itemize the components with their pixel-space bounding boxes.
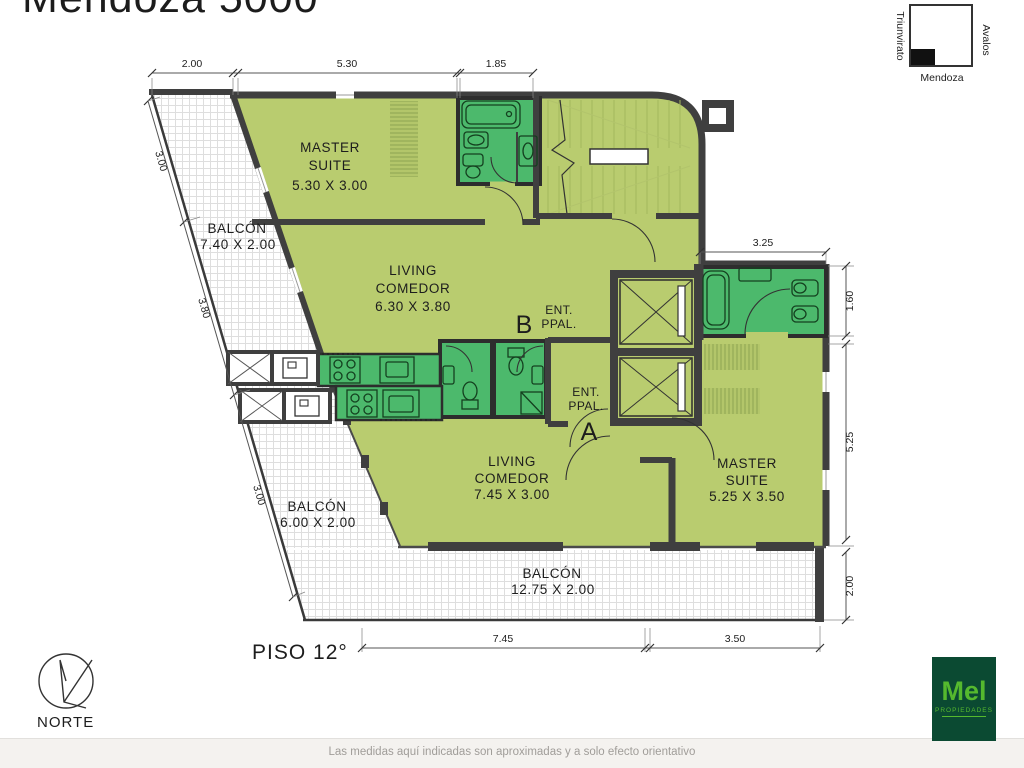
locator-map: Triunvirato Avalos Mendoza [894,5,992,84]
dim-bottom-1: 7.45 [493,633,514,645]
street-left: Triunvirato [894,11,906,60]
floor-plan-page: Mendoza 5000 [0,0,1024,768]
wardrobe-master-a-1 [704,344,760,370]
north-compass: NORTE [37,654,94,731]
svg-text:5.30 X 3.00: 5.30 X 3.00 [292,178,368,193]
dim-left-2: 3.80 [195,297,212,320]
balcony-b-label: BALCÓN [207,221,266,236]
wardrobe-master-b [390,101,418,177]
floor-plan-drawing: MASTER SUITE 5.30 X 3.00 LIVING COMEDOR … [0,0,1024,768]
svg-text:5.25 X 3.50: 5.25 X 3.50 [709,489,785,504]
svg-text:PPAL.: PPAL. [568,399,603,413]
svg-text:COMEDOR: COMEDOR [376,281,451,296]
living-a-label: LIVING [488,454,536,469]
logo-name: Mel [933,678,995,705]
street-bottom: Mendoza [920,72,963,84]
svg-text:ENT.: ENT. [545,303,573,317]
svg-text:6.00 X 2.00: 6.00 X 2.00 [280,515,356,530]
svg-text:ENT.: ENT. [572,385,600,399]
master-b-label: MASTER [300,140,360,155]
dim-left-1: 3.00 [152,150,169,173]
north-arrow-icon [60,660,92,708]
svg-text:12.75 X 2.00: 12.75 X 2.00 [511,582,595,597]
svg-text:7.40 X 2.00: 7.40 X 2.00 [200,237,276,252]
site-marker [911,49,935,65]
svg-text:COMEDOR: COMEDOR [475,471,550,486]
toilet-room-1 [440,341,492,417]
svg-text:6.30 X 3.80: 6.30 X 3.80 [375,299,451,314]
wardrobe-master-a-2 [704,388,760,414]
dim-top-3: 1.85 [486,58,507,70]
dim-left-3: 3.00 [250,484,267,507]
svg-text:SUITE: SUITE [726,473,769,488]
svg-text:PPAL.: PPAL. [541,317,576,331]
balcony-a-label: BALCÓN [287,499,346,514]
street-right: Avalos [980,24,992,55]
toilet-room-2 [494,341,546,417]
mel-logo: Mel PROPIEDADES [933,658,995,740]
floor-label: PISO 12° [252,641,348,664]
page-title: Mendoza 5000 [22,0,319,23]
logo-subtitle: PROPIEDADES [933,707,995,714]
dim-right-2: 1.60 [844,291,856,312]
dim-top-2: 5.30 [337,58,358,70]
north-label: NORTE [37,714,94,731]
dim-top-1: 2.00 [182,58,203,70]
dim-bottom-2: 3.50 [725,633,746,645]
disclaimer-text: Las medidas aquí indicadas son aproximad… [0,746,1024,758]
facade-notch [702,100,734,132]
svg-text:SUITE: SUITE [309,158,352,173]
dim-right-4: 2.00 [844,576,856,597]
kitchen-b [318,354,440,386]
logo-underline [942,716,986,717]
balcony-bottom-label: BALCÓN [522,566,581,581]
unit-b-letter: B [516,311,533,339]
unit-a-letter: A [581,418,598,446]
master-a-label: MASTER [717,456,777,471]
svg-text:7.45 X 3.00: 7.45 X 3.00 [474,487,550,502]
dim-right-3: 5.25 [844,432,856,453]
dim-right-1: 3.25 [753,237,774,249]
bathroom-b [458,98,540,184]
living-b-label: LIVING [389,263,437,278]
